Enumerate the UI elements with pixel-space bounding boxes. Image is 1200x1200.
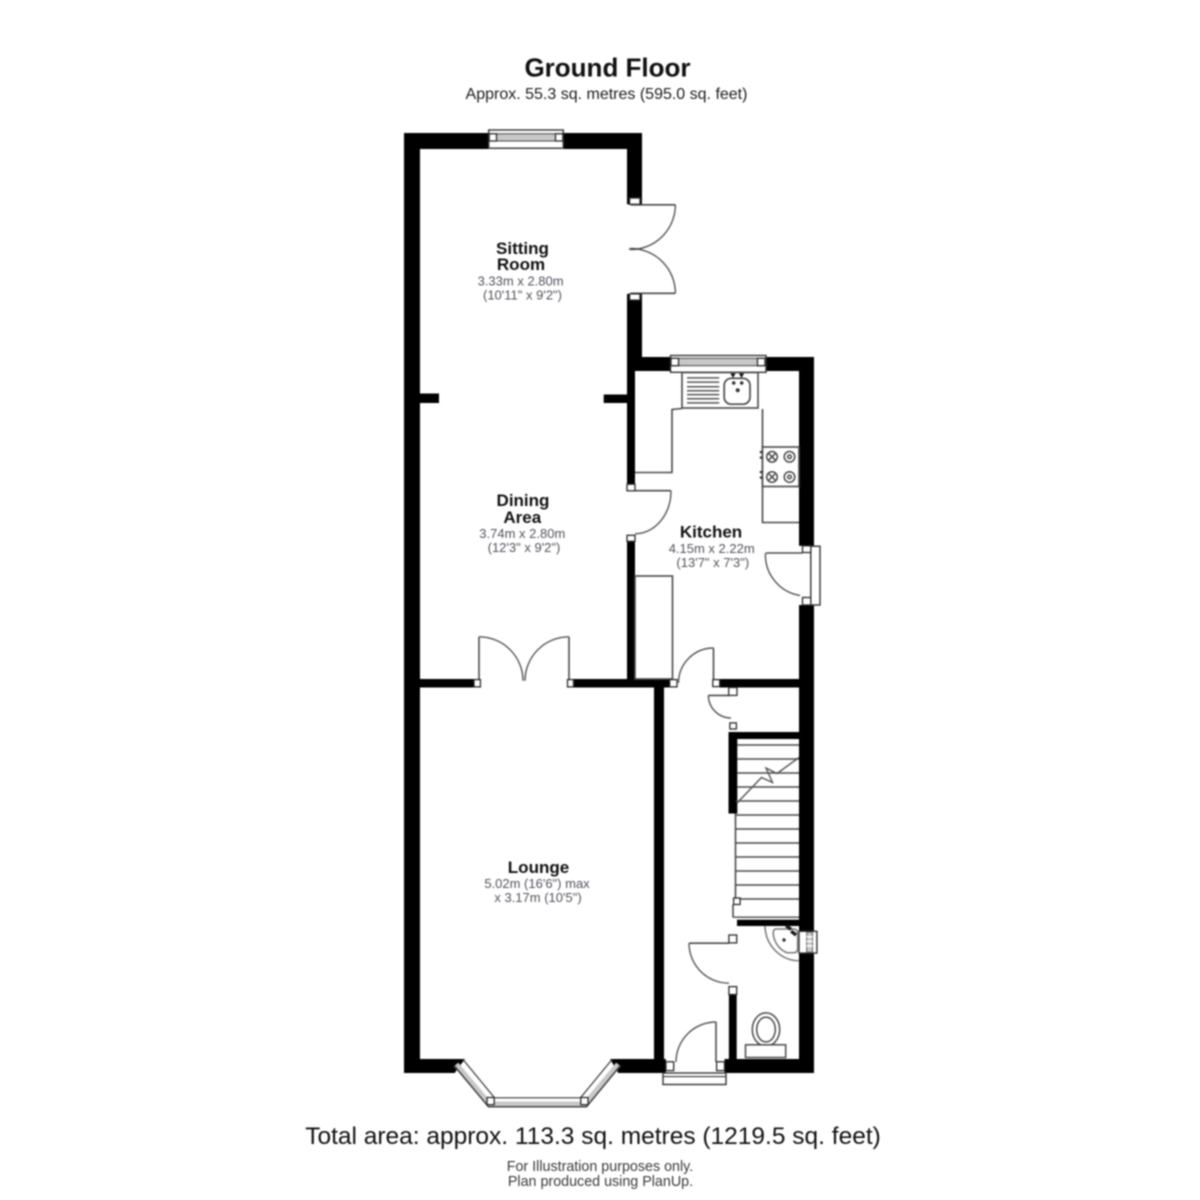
svg-text:Approx. 55.3 sq. metres (595.0: Approx. 55.3 sq. metres (595.0 sq. feet) [466, 86, 748, 103]
svg-text:Area: Area [503, 508, 541, 527]
svg-text:4.15m x 2.22m: 4.15m x 2.22m [669, 541, 755, 556]
svg-text:Ground Floor: Ground Floor [524, 53, 690, 83]
svg-text:3.33m x 2.80m: 3.33m x 2.80m [478, 274, 564, 289]
svg-text:(13'7" x 7'3"): (13'7" x 7'3") [676, 555, 749, 570]
svg-text:Total area: approx. 113.3 sq.: Total area: approx. 113.3 sq. metres (12… [305, 1123, 881, 1150]
svg-text:(12'3" x 9'2"): (12'3" x 9'2") [488, 540, 561, 555]
svg-text:Plan produced using PlanUp.: Plan produced using PlanUp. [508, 1174, 693, 1190]
svg-text:Room: Room [497, 255, 545, 274]
svg-text:x 3.17m (10'5"): x 3.17m (10'5") [494, 890, 581, 905]
svg-text:3.74m x 2.80m: 3.74m x 2.80m [479, 526, 565, 541]
svg-text:(10'11" x 9'2"): (10'11" x 9'2") [483, 288, 562, 303]
svg-text:For Illustration purposes only: For Illustration purposes only. [507, 1159, 693, 1175]
svg-text:Kitchen: Kitchen [680, 523, 742, 542]
svg-text:5.02m (16'6") max: 5.02m (16'6") max [484, 876, 590, 891]
svg-text:Lounge: Lounge [508, 858, 569, 877]
